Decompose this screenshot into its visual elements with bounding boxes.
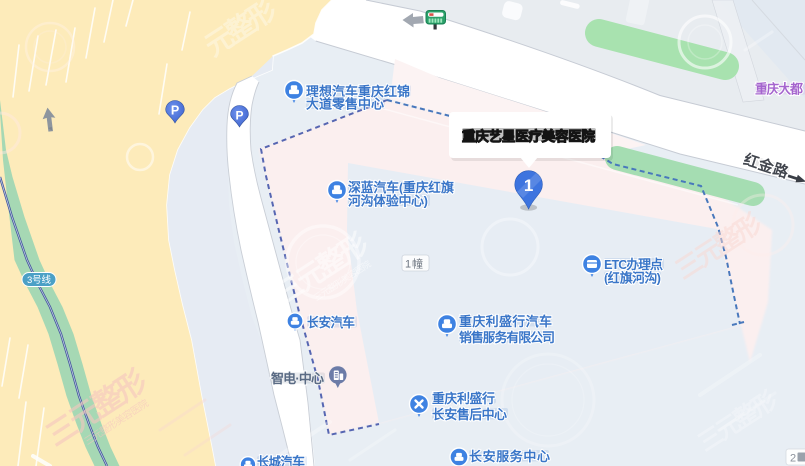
svg-text:长城汽车: 长城汽车: [257, 455, 305, 466]
svg-text:重庆大都: 重庆大都: [755, 82, 803, 97]
svg-text:1幢: 1幢: [405, 257, 423, 271]
svg-text:2: 2: [790, 453, 796, 465]
svg-text:重庆利盛行: 重庆利盛行: [432, 391, 495, 406]
svg-text:P: P: [235, 108, 243, 122]
svg-text:长安汽车: 长安汽车: [307, 315, 355, 330]
svg-text:P: P: [171, 104, 179, 118]
svg-text:1: 1: [524, 176, 533, 195]
svg-text:3号线: 3号线: [27, 274, 51, 286]
svg-text:长安售后中心: 长安售后中心: [432, 407, 507, 422]
svg-text:重庆艺星医疗美容医院: 重庆艺星医疗美容医院: [462, 128, 596, 144]
svg-text:河沟体验中心): 河沟体验中心): [348, 194, 428, 209]
svg-text:销售服务有限公司: 销售服务有限公司: [459, 330, 555, 345]
svg-text:长安服务中心: 长安服务中心: [469, 449, 550, 464]
svg-text:重庆利盛行汽车: 重庆利盛行汽车: [459, 314, 552, 329]
svg-text:(红旗河沟): (红旗河沟): [604, 271, 661, 286]
svg-text:大道零售中心: 大道零售中心: [306, 97, 384, 112]
